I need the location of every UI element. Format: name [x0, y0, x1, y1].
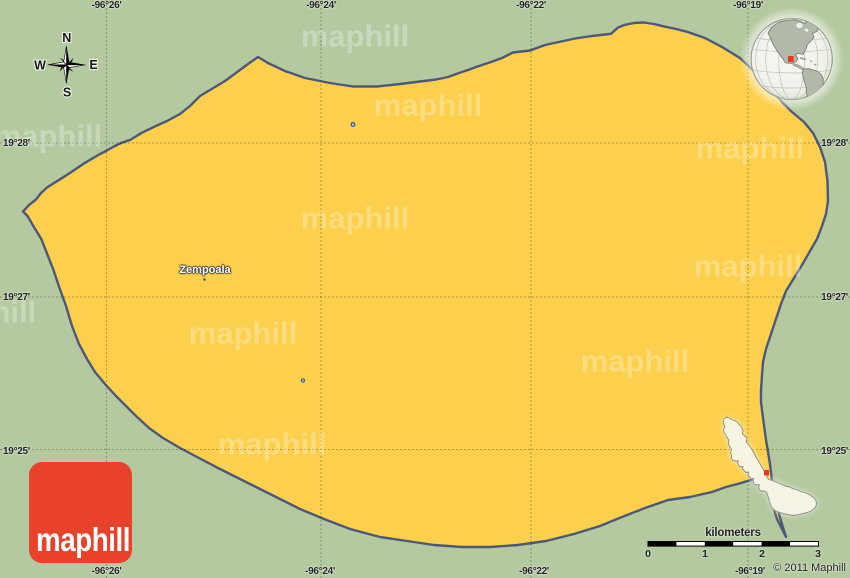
svg-text:E: E	[89, 58, 97, 72]
svg-text:N: N	[62, 31, 71, 45]
svg-text:S: S	[63, 85, 71, 99]
svg-text:W: W	[34, 58, 46, 72]
